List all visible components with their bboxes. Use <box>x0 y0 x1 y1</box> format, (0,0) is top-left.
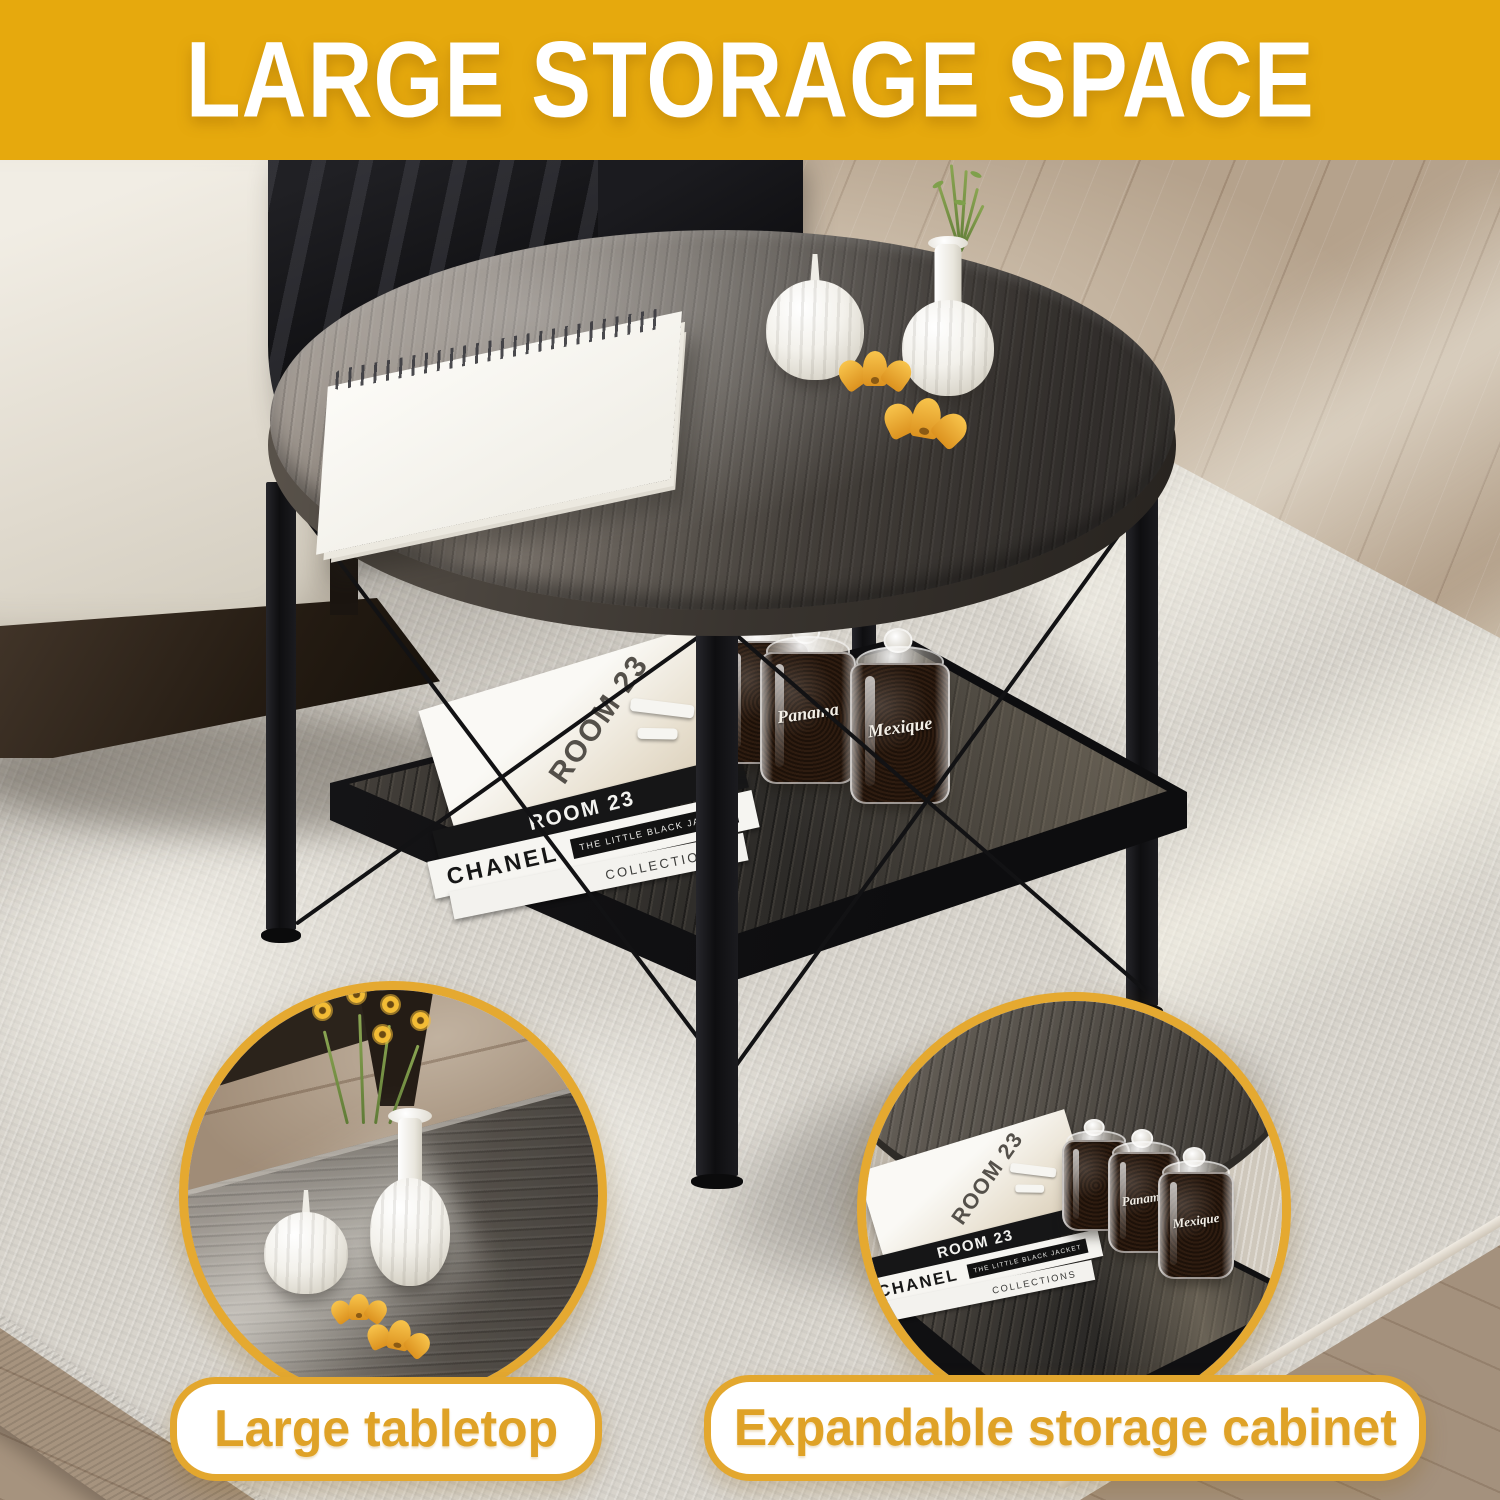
jar-body: Panama <box>760 652 856 784</box>
callout-label: Large tabletop <box>214 1399 558 1459</box>
chalk-stick <box>630 698 695 719</box>
lotus-ornament <box>338 1290 380 1320</box>
inset-storage-detail: ROOM 23 ROOM 23 CHANEL THE LITTLE BLACK … <box>857 992 1291 1426</box>
yellow-wildflowers <box>308 984 508 1124</box>
table-leg-front <box>696 598 738 1176</box>
banner-title: LARGE STORAGE SPACE <box>186 18 1315 142</box>
lotus-ornament <box>848 346 902 386</box>
table-leg-right <box>1126 458 1158 1006</box>
inset-tabletop-detail <box>179 981 607 1409</box>
tall-white-vase <box>370 1108 450 1286</box>
product-image: LARGE STORAGE SPACE R <box>0 0 1500 1500</box>
jar-label: Mexique <box>866 712 933 742</box>
table-leg-left <box>266 482 296 930</box>
book-cover-title: ROOM 23 <box>543 649 656 791</box>
tall-white-vase <box>902 238 994 396</box>
chalk-stick <box>637 728 677 740</box>
lotus-ornament <box>892 387 961 443</box>
small-white-vase <box>264 1202 348 1294</box>
living-room-photo: ROOM 23 ROOM 23 CHANEL THE LITTLE BLACK … <box>0 160 1500 1500</box>
callout-large-tabletop: Large tabletop <box>170 1377 602 1481</box>
callout-label: Expandable storage cabinet <box>733 1398 1396 1458</box>
jar-body: Mexique <box>850 663 950 804</box>
banner: LARGE STORAGE SPACE <box>0 0 1500 160</box>
glass-jar: Panama <box>760 620 852 784</box>
glass-jar-detail: Mexique <box>1158 1147 1230 1279</box>
callout-expandable-storage: Expandable storage cabinet <box>704 1375 1426 1481</box>
